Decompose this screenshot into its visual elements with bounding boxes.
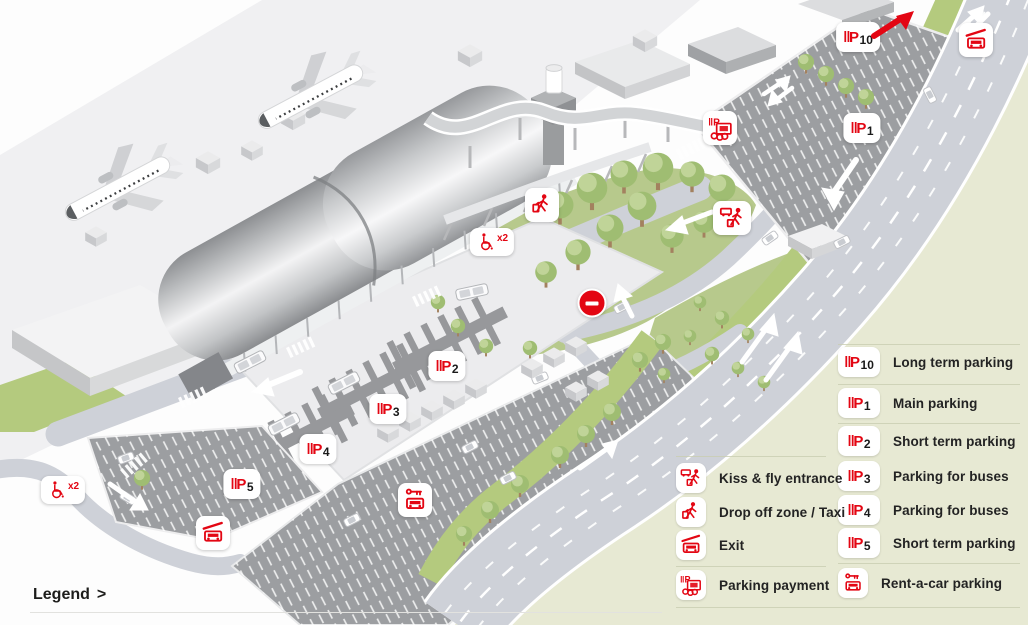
- exit-icon: [963, 27, 989, 53]
- exit-icon: [679, 533, 703, 557]
- wheelchair-icon: [476, 232, 496, 252]
- legend-link-label: Legend: [33, 586, 90, 604]
- marker-wheelchair-b: x2: [41, 476, 85, 504]
- parking-icon: ‖P: [847, 396, 861, 411]
- legend-divider: [676, 566, 826, 567]
- legend-divider: [676, 456, 826, 457]
- parking-icon: ‖P: [843, 30, 857, 45]
- legend-item-buses-4: ‖P4 Parking for buses: [838, 495, 1009, 525]
- exit-icon: [200, 520, 226, 546]
- legend-divider: [838, 384, 1020, 385]
- marker-kissfly: [713, 201, 751, 235]
- parking-icon: ‖P: [850, 121, 864, 136]
- kissfly-icon: [718, 204, 746, 232]
- marker-parking-payment: [703, 111, 737, 145]
- parking-icon: ‖P: [847, 434, 861, 449]
- legend-item-main: ‖P1 Main parking: [838, 388, 977, 418]
- marker-exit-north: [959, 23, 993, 57]
- marker-dropoff: [525, 188, 559, 222]
- legend-rule-divider: [30, 612, 662, 613]
- legend-divider: [676, 607, 1020, 608]
- dropoff-icon: [679, 500, 703, 524]
- marker-rentacar: [398, 483, 432, 517]
- legend-item-payment: Parking payment: [676, 570, 829, 600]
- legend-divider: [838, 423, 1020, 424]
- marker-p3: ‖P 3: [369, 394, 406, 424]
- legend-item-long-term: ‖P10 Long term parking: [838, 347, 1013, 377]
- legend-item-exit: Exit: [676, 530, 744, 560]
- marker-p4: ‖P 4: [299, 434, 336, 464]
- parking-icon: ‖P: [306, 442, 320, 457]
- marker-p2: ‖P 2: [428, 351, 465, 381]
- payment-icon: [679, 573, 703, 597]
- legend-item-kissfly: Kiss & fly entrance: [676, 463, 842, 493]
- marker-p5: ‖P 5: [223, 469, 260, 499]
- parking-icon: ‖P: [376, 402, 390, 417]
- legend-item-rentacar: Rent-a-car parking: [838, 568, 1002, 598]
- payment-icon: [707, 115, 734, 142]
- rentacar-icon: [842, 572, 864, 594]
- legend-item-dropoff: Drop off zone / Taxi: [676, 497, 845, 527]
- chevron-right-icon: >: [97, 586, 106, 604]
- marker-p1: ‖P 1: [843, 113, 880, 143]
- parking-icon: ‖P: [847, 469, 861, 484]
- airport-parking-map: ‖P: [0, 0, 1028, 625]
- kissfly-icon: [679, 466, 703, 490]
- parking-icon: ‖P: [847, 503, 861, 518]
- wheelchair-icon: [47, 480, 67, 500]
- dropoff-icon: [529, 192, 555, 218]
- parking-icon: ‖P: [844, 355, 858, 370]
- marker-wheelchair-a: x2: [470, 228, 514, 256]
- marker-exit-south: [196, 516, 230, 550]
- parking-icon: ‖P: [847, 536, 861, 551]
- legend-item-buses-3: ‖P3 Parking for buses: [838, 461, 1009, 491]
- rentacar-icon: [402, 487, 428, 513]
- legend-item-short-term-2: ‖P2 Short term parking: [838, 426, 1016, 456]
- legend-divider: [838, 563, 1020, 564]
- p10-direction-arrow: [866, 8, 918, 44]
- legend-divider: [838, 344, 1020, 345]
- parking-icon: ‖P: [230, 477, 244, 492]
- legend-toggle-link[interactable]: Legend >: [33, 586, 106, 604]
- parking-icon: ‖P: [435, 359, 449, 374]
- no-entry-sign: [578, 289, 607, 318]
- legend-item-short-term-5: ‖P5 Short term parking: [838, 528, 1016, 558]
